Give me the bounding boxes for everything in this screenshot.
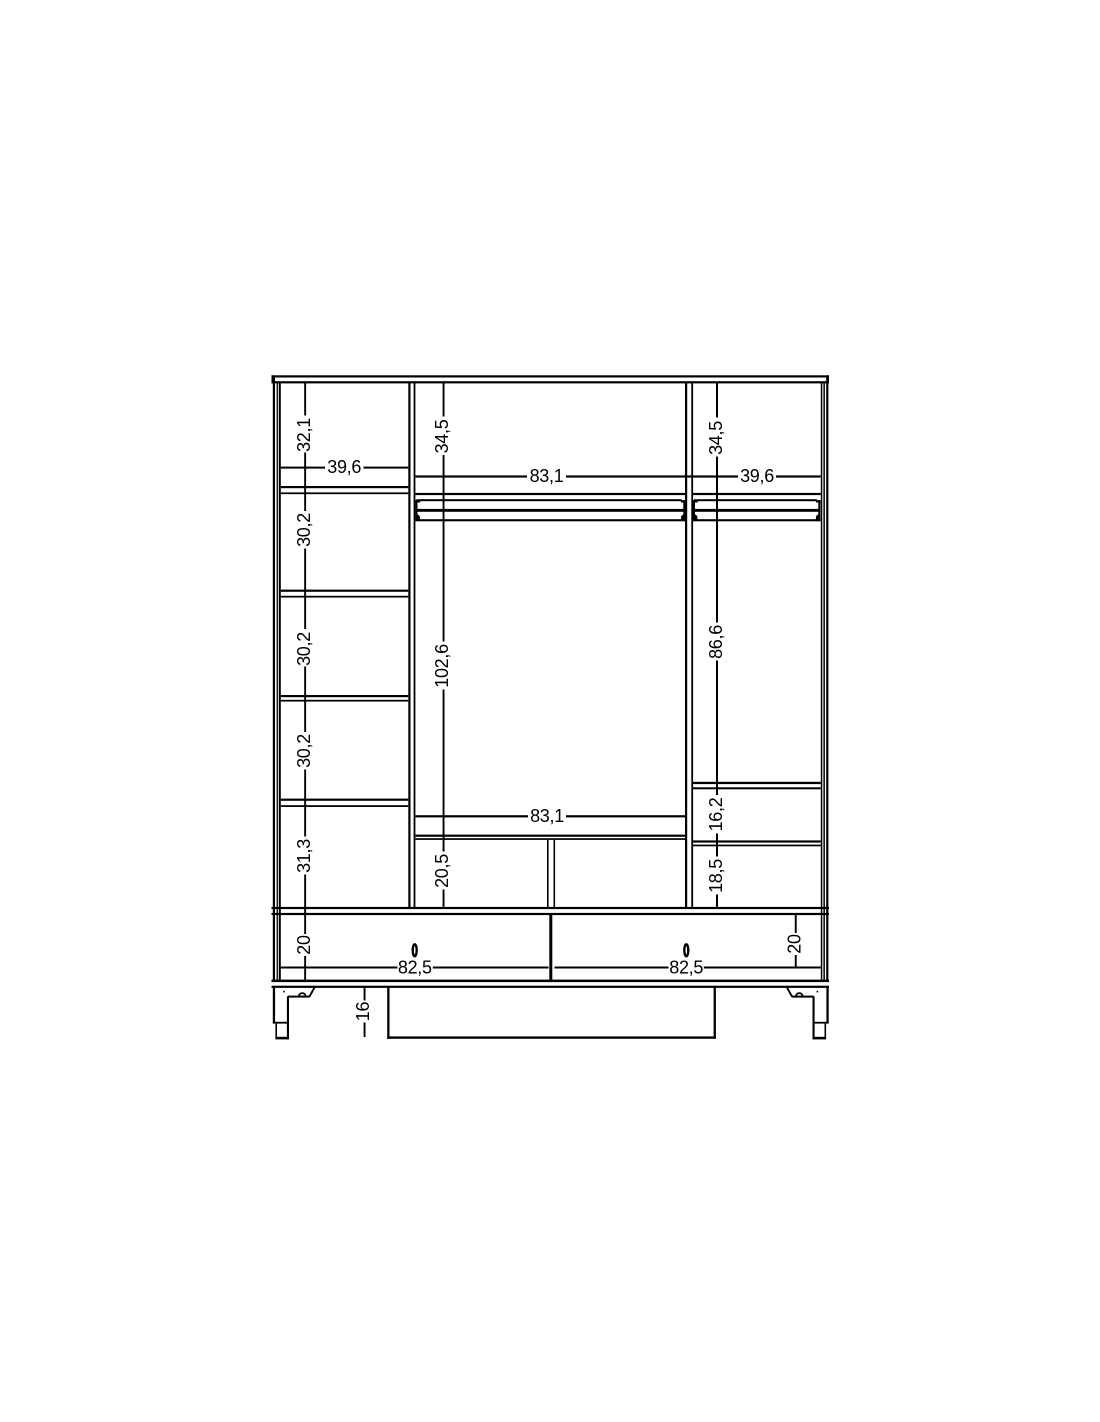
svg-text:34,5: 34,5 bbox=[432, 419, 452, 453]
svg-text:39,6: 39,6 bbox=[327, 457, 361, 477]
svg-text:32,1: 32,1 bbox=[294, 418, 314, 452]
svg-text:20,5: 20,5 bbox=[432, 854, 452, 888]
svg-text:82,5: 82,5 bbox=[398, 957, 432, 977]
svg-text:20: 20 bbox=[784, 934, 804, 954]
svg-text:102,6: 102,6 bbox=[432, 644, 452, 688]
svg-text:16: 16 bbox=[353, 1002, 373, 1022]
svg-text:86,6: 86,6 bbox=[706, 625, 726, 659]
svg-text:83,1: 83,1 bbox=[530, 466, 564, 486]
svg-text:16,2: 16,2 bbox=[706, 797, 726, 831]
svg-text:31,3: 31,3 bbox=[294, 839, 314, 873]
svg-text:39,6: 39,6 bbox=[740, 466, 774, 486]
svg-text:18,5: 18,5 bbox=[706, 859, 726, 893]
svg-text:30,2: 30,2 bbox=[294, 632, 314, 666]
svg-text:83,1: 83,1 bbox=[530, 806, 564, 826]
svg-text:20: 20 bbox=[294, 935, 314, 955]
svg-text:82,5: 82,5 bbox=[669, 957, 703, 977]
svg-text:34,5: 34,5 bbox=[706, 421, 726, 455]
svg-text:30,2: 30,2 bbox=[294, 513, 314, 547]
svg-text:30,2: 30,2 bbox=[294, 734, 314, 768]
